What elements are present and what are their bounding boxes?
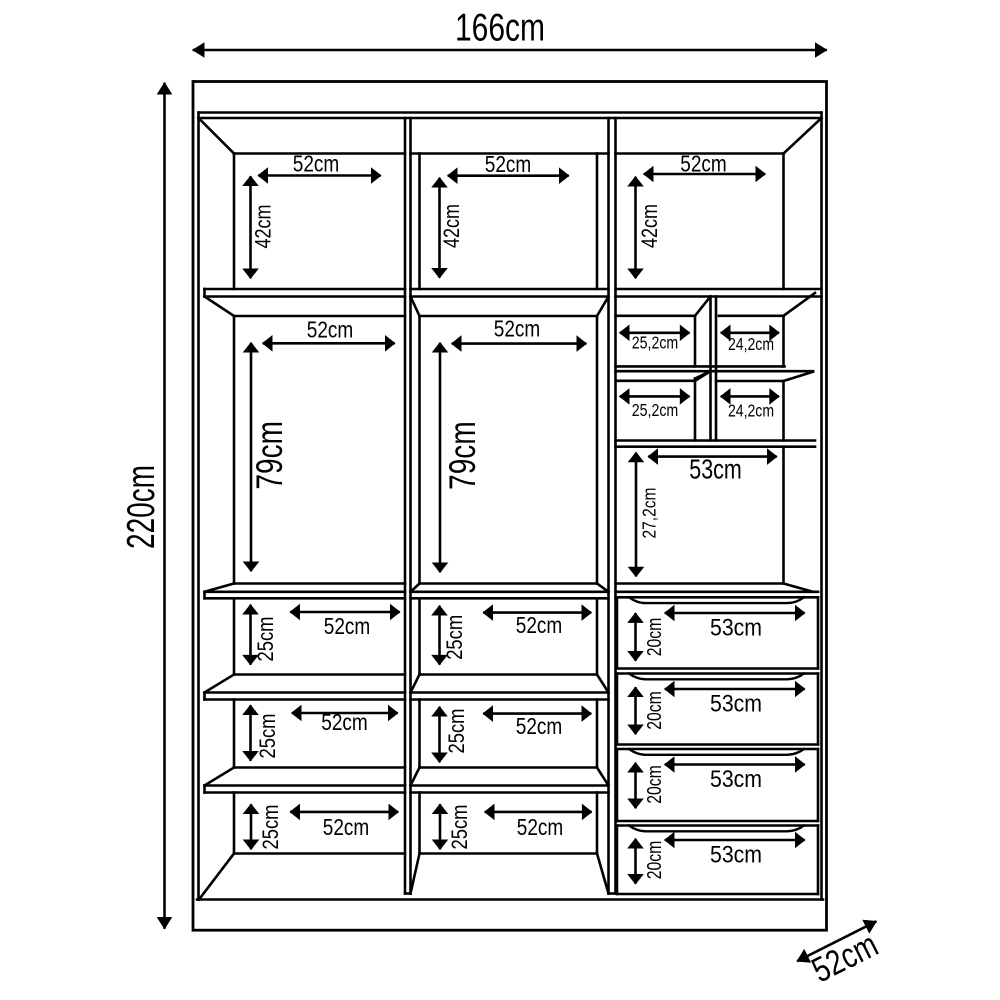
svg-text:79cm: 79cm [441,421,483,490]
svg-text:20cm: 20cm [643,691,666,730]
svg-text:25cm: 25cm [442,615,467,660]
svg-text:53cm: 53cm [689,453,742,484]
svg-text:53cm: 53cm [710,842,762,869]
svg-text:52cm: 52cm [293,151,340,177]
svg-text:25cm: 25cm [255,714,280,759]
svg-text:52cm: 52cm [516,713,563,739]
svg-text:42cm: 42cm [637,204,662,248]
svg-text:52cm: 52cm [324,613,371,639]
svg-text:27,2cm: 27,2cm [639,488,660,539]
svg-text:25cm: 25cm [444,709,469,754]
svg-text:166cm: 166cm [455,7,545,50]
svg-text:220cm: 220cm [120,465,163,549]
svg-text:25,2cm: 25,2cm [632,400,679,420]
svg-text:52cm: 52cm [516,612,563,638]
svg-text:53cm: 53cm [710,615,762,642]
svg-text:24,2cm: 24,2cm [728,401,774,421]
svg-text:24,2cm: 24,2cm [728,334,774,354]
svg-text:25cm: 25cm [258,805,283,850]
svg-text:52cm: 52cm [680,151,727,177]
svg-text:20cm: 20cm [643,841,666,880]
svg-text:53cm: 53cm [710,766,762,793]
svg-text:20cm: 20cm [643,765,666,804]
svg-text:52cm: 52cm [494,316,541,342]
svg-text:25cm: 25cm [253,617,278,662]
svg-text:25cm: 25cm [447,805,472,850]
svg-text:42cm: 42cm [439,204,464,248]
svg-text:52cm: 52cm [485,151,532,177]
svg-text:52cm: 52cm [323,814,370,840]
svg-text:52cm: 52cm [321,709,368,735]
svg-text:52cm: 52cm [517,814,564,840]
svg-text:42cm: 42cm [251,205,276,249]
svg-text:53cm: 53cm [710,691,762,718]
svg-text:52cm: 52cm [307,317,354,343]
svg-text:79cm: 79cm [248,421,290,490]
svg-text:20cm: 20cm [643,618,666,657]
svg-text:25,2cm: 25,2cm [632,332,679,352]
